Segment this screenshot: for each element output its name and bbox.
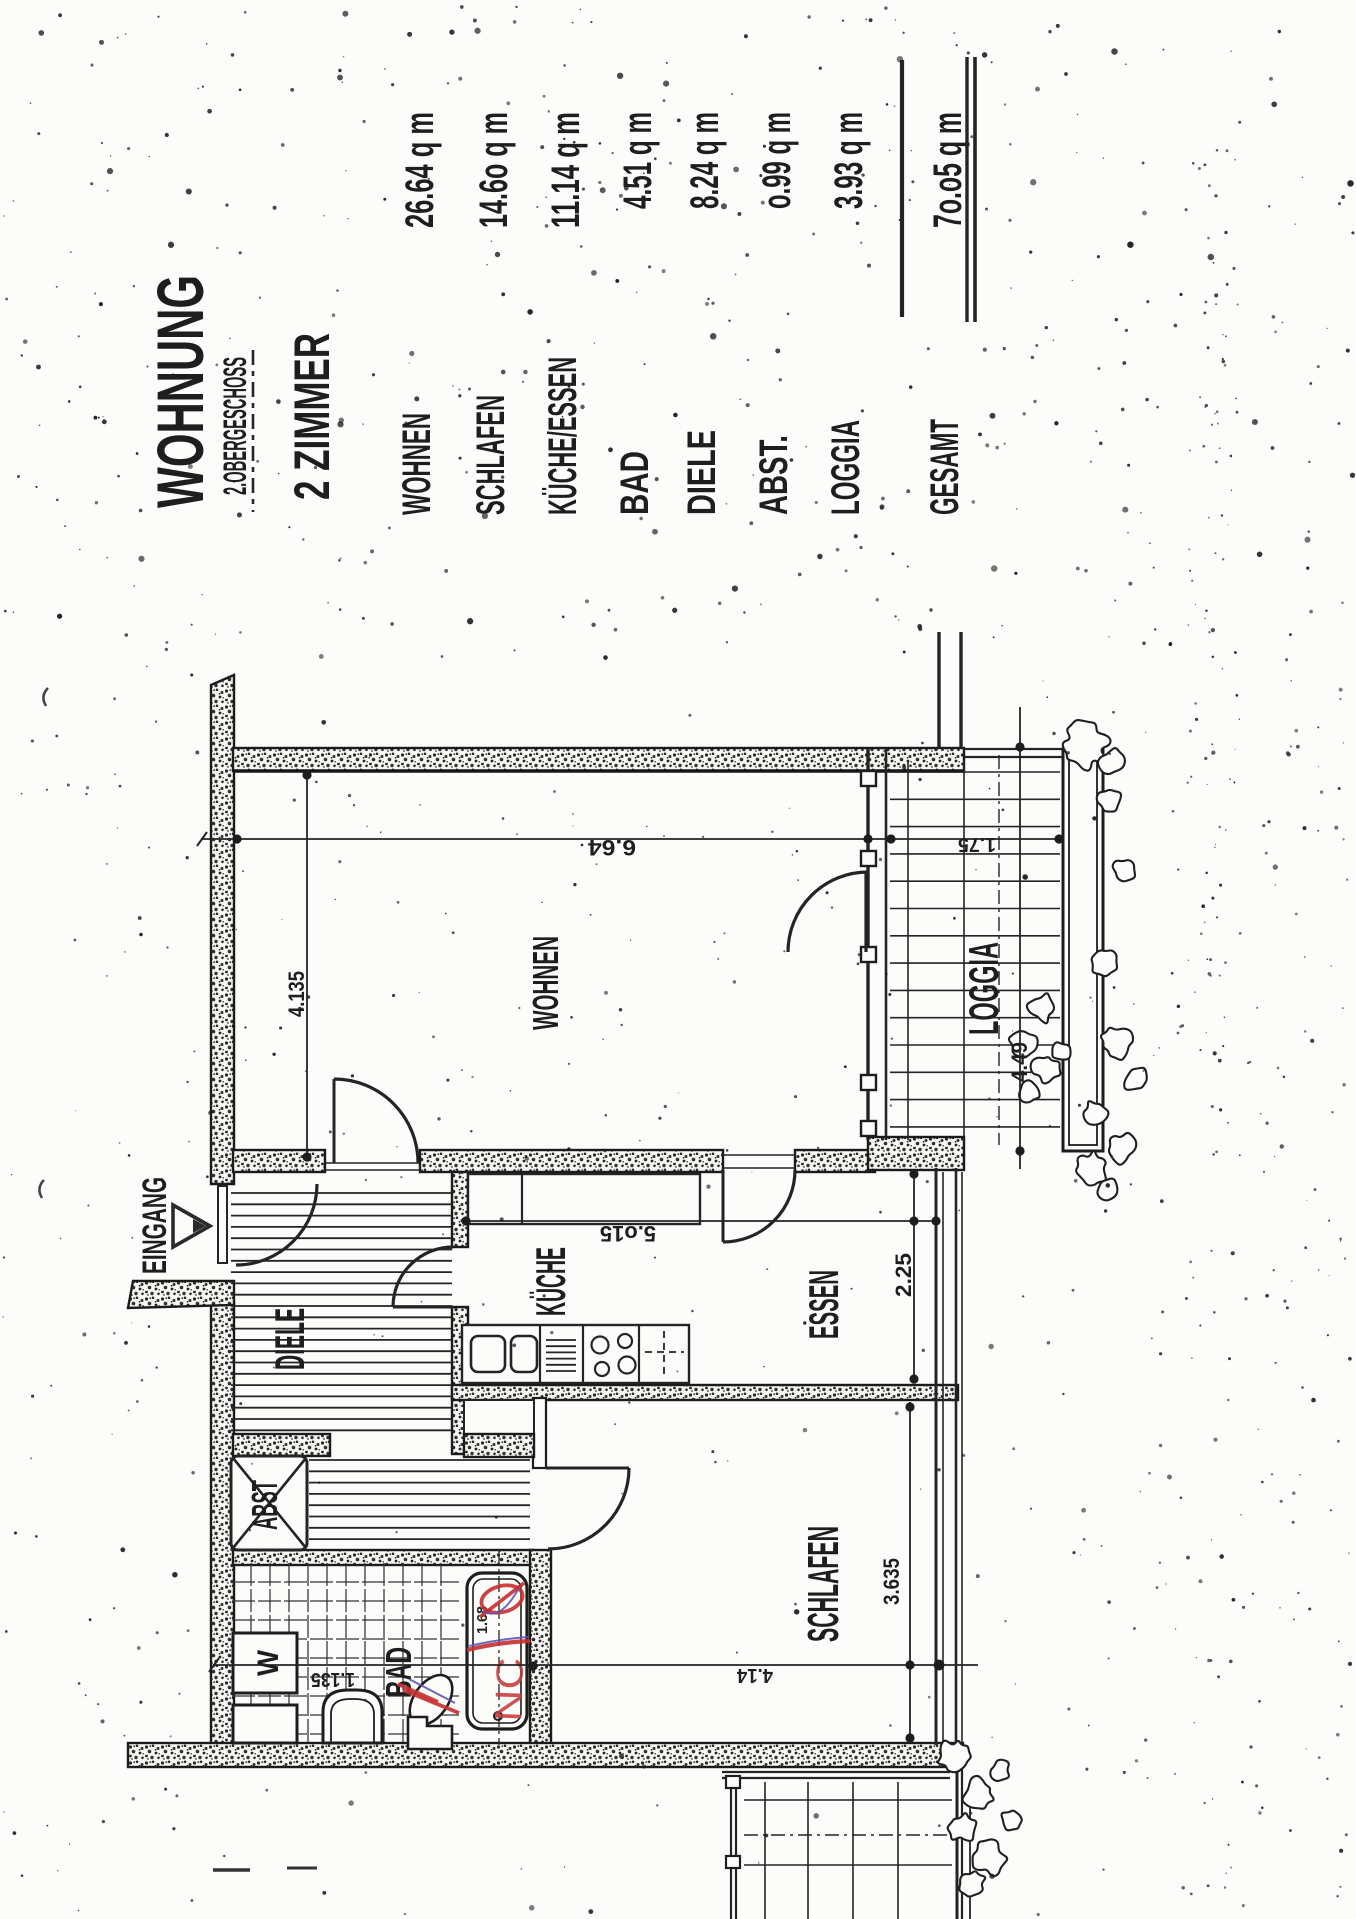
svg-text:6.64: 6.64 [587,835,636,860]
svg-text:ESSEN: ESSEN [800,1270,847,1339]
svg-text:DIELE: DIELE [266,1308,313,1370]
svg-text:5.o15: 5.o15 [600,1221,656,1246]
svg-text:W: W [252,1649,285,1676]
svg-text:4.51 q m: 4.51 q m [616,112,660,209]
svg-text:SCHLAFEN: SCHLAFEN [469,395,513,515]
svg-text:2.25: 2.25 [891,1253,916,1297]
svg-text:14.6o q m: 14.6o q m [472,112,516,228]
svg-text:WOHNEN: WOHNEN [525,936,566,1030]
svg-text:2 ZIMMER: 2 ZIMMER [284,333,340,500]
svg-text:4.135: 4.135 [284,971,309,1017]
svg-text:7o.o5 q m: 7o.o5 q m [926,112,970,228]
svg-text:NC: NC [488,1657,532,1722]
svg-text:2.OBERGESCHOSS: 2.OBERGESCHOSS [217,357,253,495]
svg-text:KÜCHE/ESSEN: KÜCHE/ESSEN [540,357,585,515]
svg-text:ABST.: ABST. [752,435,796,515]
svg-text:GESAMT: GESAMT [923,419,967,515]
svg-text:BAD: BAD [613,451,657,515]
svg-text:ABST: ABST [244,1480,285,1530]
svg-text:4.14: 4.14 [736,1664,773,1686]
svg-text:3.635: 3.635 [879,1558,904,1605]
svg-text:3.93 q m: 3.93 q m [827,112,871,209]
svg-text:SCHLAFEN: SCHLAFEN [799,1526,848,1642]
svg-text:LOGGIA: LOGGIA [960,942,1007,1035]
svg-text:1.135: 1.135 [311,1668,355,1690]
svg-text:1.75: 1.75 [958,833,996,855]
svg-text:26.64 q m: 26.64 q m [398,112,442,228]
svg-text:o.99 q m: o.99 q m [755,112,799,209]
svg-text:LOGGIA: LOGGIA [824,420,868,515]
svg-text:DIELE: DIELE [680,430,724,515]
svg-text:WOHNEN: WOHNEN [395,413,439,515]
svg-text:11.14 q m: 11.14 q m [544,112,588,228]
svg-text:8.24 q m: 8.24 q m [683,112,727,209]
svg-text:KÜCHE: KÜCHE [527,1247,574,1316]
svg-text:WOHNUNG: WOHNUNG [143,275,217,508]
svg-text:EINGANG: EINGANG [136,1177,174,1274]
